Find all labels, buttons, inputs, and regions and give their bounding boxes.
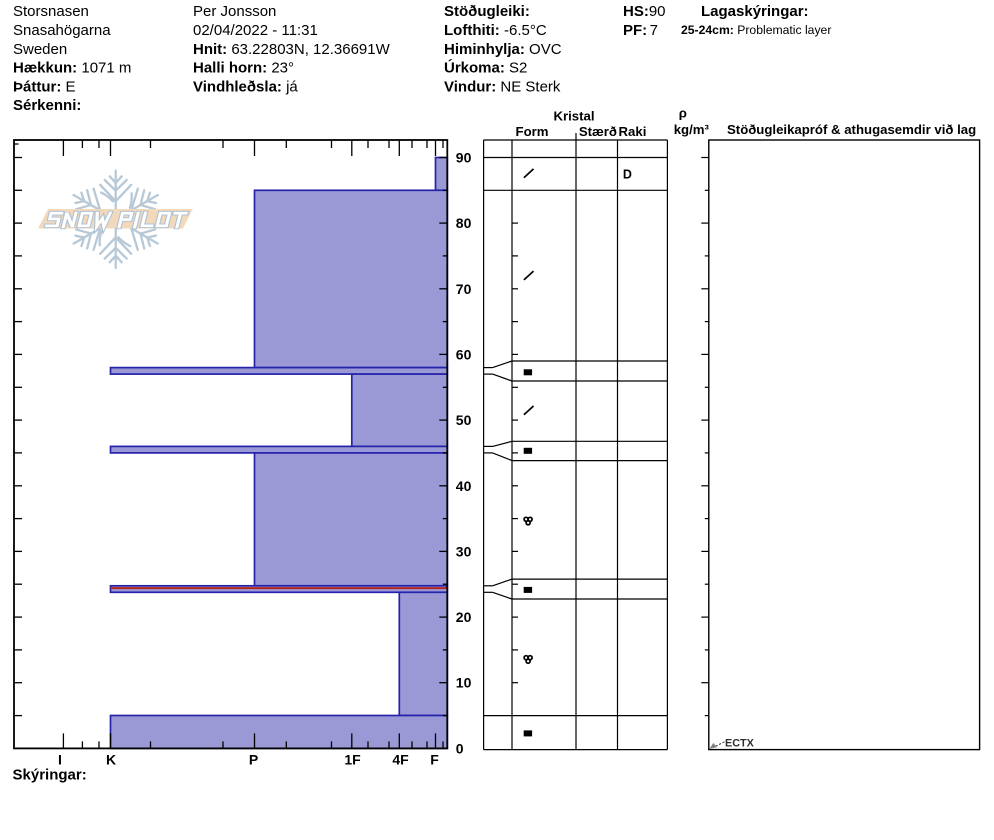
svg-text:0: 0 (456, 740, 464, 756)
svg-text:30: 30 (456, 543, 472, 559)
svg-text:Hnit: 63.22803N, 12.36691W: Hnit: 63.22803N, 12.36691W (193, 41, 391, 58)
svg-text:40: 40 (456, 478, 472, 494)
svg-text:HS:90: HS:90 (623, 3, 666, 20)
svg-text:Þáttur: E: Þáttur: E (13, 78, 76, 95)
svg-text:1F: 1F (344, 752, 361, 768)
svg-text:Stærð: Stærð (579, 124, 617, 139)
svg-text:F: F (430, 752, 439, 768)
svg-text:Vindhleðsla: já: Vindhleðsla: já (193, 78, 298, 95)
svg-text:I: I (58, 752, 62, 768)
svg-text:25-24cm: Problematic layer: 25-24cm: Problematic layer (681, 23, 831, 37)
svg-text:Stöðugleiki:: Stöðugleiki: (444, 3, 530, 20)
svg-text:ECTX: ECTX (725, 737, 755, 749)
svg-text:80: 80 (456, 215, 472, 231)
svg-text:Raki: Raki (619, 124, 647, 139)
svg-text:20: 20 (456, 609, 472, 625)
svg-text:Form: Form (516, 124, 549, 139)
svg-text:ρ: ρ (679, 105, 687, 120)
svg-text:PF:7: PF:7 (623, 22, 658, 39)
svg-text:90: 90 (456, 150, 472, 166)
svg-text:70: 70 (456, 281, 472, 297)
svg-text:Úrkoma: S2: Úrkoma: S2 (444, 59, 527, 77)
svg-text:Sweden: Sweden (13, 41, 67, 58)
svg-text:Snasahögarna: Snasahögarna (13, 22, 111, 39)
svg-text:50: 50 (456, 412, 472, 428)
svg-text:Halli horn: 23°: Halli horn: 23° (193, 60, 294, 77)
svg-text:Per Jonsson: Per Jonsson (193, 3, 276, 20)
svg-text:Sérkenni:: Sérkenni: (13, 97, 81, 114)
svg-text:kg/m³: kg/m³ (674, 122, 710, 137)
svg-text:4F: 4F (392, 752, 409, 768)
svg-text:Lofthiti: -6.5°C: Lofthiti: -6.5°C (444, 22, 547, 39)
svg-text:Storsnasen: Storsnasen (13, 3, 89, 20)
svg-text:02/04/2022 - 11:31: 02/04/2022 - 11:31 (193, 22, 318, 39)
svg-text:Stöðugleikapróf & athugasemdir: Stöðugleikapróf & athugasemdir við lag (727, 122, 976, 137)
svg-text:Vindur: NE Sterk: Vindur: NE Sterk (444, 78, 561, 95)
svg-text:Himinhylja: OVC: Himinhylja: OVC (444, 41, 562, 58)
svg-text:D: D (623, 168, 632, 182)
svg-text:K: K (106, 752, 116, 768)
svg-text:Lagaskýringar:: Lagaskýringar: (701, 3, 809, 20)
svg-text:60: 60 (456, 346, 472, 362)
svg-text:Skýringar:: Skýringar: (13, 767, 87, 784)
svg-text:Hækkun: 1071 m: Hækkun: 1071 m (13, 60, 131, 77)
svg-text:P: P (249, 752, 258, 768)
svg-text:Kristal: Kristal (553, 109, 594, 124)
svg-text:10: 10 (456, 675, 472, 691)
